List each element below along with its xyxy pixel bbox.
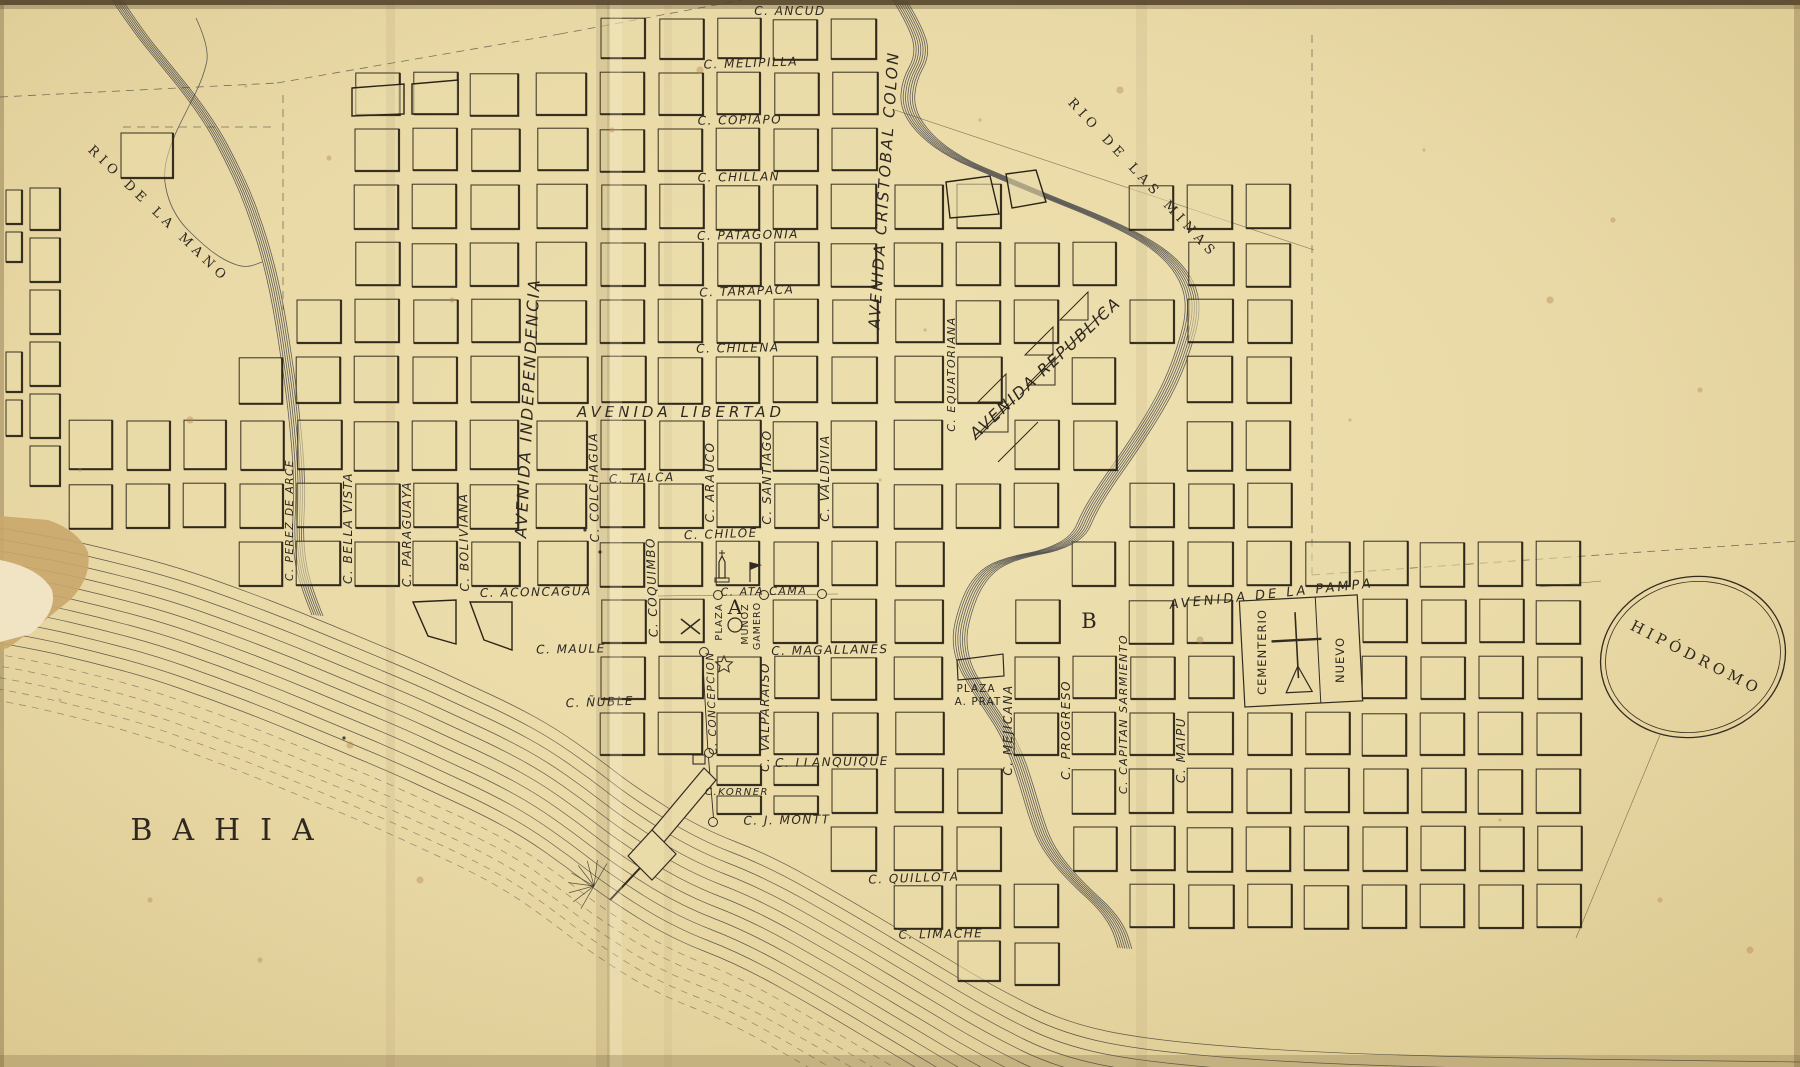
label-calle-korner: C.KORNER: [705, 787, 769, 798]
label-calle-magallanes: C. MAGALLANES: [771, 642, 889, 658]
label-cementerio-nuevo: NUEVO: [1333, 637, 1347, 683]
label-calle-capitan-sarmiento: C. CAPITAN SARMIENTO: [1117, 634, 1130, 794]
label-plaza-munoz-gamero-1: PLAZA: [714, 603, 725, 640]
label-calle-chilena: C. CHILENA: [696, 340, 780, 355]
label-calle-bella-vista: C. BELLA VISTA: [341, 472, 355, 584]
label-calle-paraguaya: C. PARAGUAYA: [400, 481, 414, 587]
label-bahia: BAHIA: [130, 813, 333, 848]
label-calle-equatoriana: C. EQUATORIANA: [945, 316, 958, 432]
label-calle-arauco: C. ARAUCO: [703, 442, 717, 523]
label-calle-aconcagua: C. ACONCAGUA: [480, 584, 592, 600]
label-calle-chillan: C. CHILLAN: [698, 169, 781, 184]
label-calle-j-montt: C. J. MONTT: [743, 812, 831, 828]
label-calle-progreso: C. PROGRESO: [1059, 680, 1073, 780]
label-calle-patagonia: C. PATAGONIA: [697, 227, 799, 243]
label-calle-llanquique: C. LLANQUIQUE: [775, 754, 889, 770]
label-calle-perez-de-arce: C. PEREZ DE ARCE: [284, 459, 296, 581]
label-calle-valparaiso: C. VALPARAISO: [758, 662, 772, 772]
label-plaza-a-prat-1: PLAZA: [957, 683, 996, 695]
label-calle-copiapo: C. COPIAPO: [698, 112, 783, 127]
label-calle-valdivia: C. VALDIVIA: [818, 434, 832, 522]
city-map-svg: RIO DE LA MANORIO DE LAS MINASBAHIAHIPÓD…: [0, 0, 1800, 1067]
label-plaza-a-prat-2: A. PRAT: [955, 696, 1002, 708]
label-calle-maule: C. MAULE: [536, 641, 606, 656]
label-calle-mejicana: C. MEJICANA: [1001, 684, 1015, 775]
label-calle-chiloe: C. CHILOE: [684, 526, 758, 543]
label-calle-limache: C. LIMACHE: [898, 926, 983, 941]
label-calle-maipu: C. MAIPÚ: [1173, 717, 1188, 783]
label-cementerio: CEMENTERIO: [1255, 609, 1269, 695]
label-calle-santiago: C. SANTIAGO: [760, 429, 774, 524]
label-calle-boliviana: C. BOLIVIANA: [456, 492, 472, 591]
label-plaza-munoz-gamero-3: GAMERO: [752, 602, 763, 650]
label-marker-b: B: [1081, 609, 1096, 633]
historic-city-map: RIO DE LA MANORIO DE LAS MINASBAHIAHIPÓD…: [0, 0, 1800, 1067]
label-marker-a: A: [727, 595, 743, 619]
